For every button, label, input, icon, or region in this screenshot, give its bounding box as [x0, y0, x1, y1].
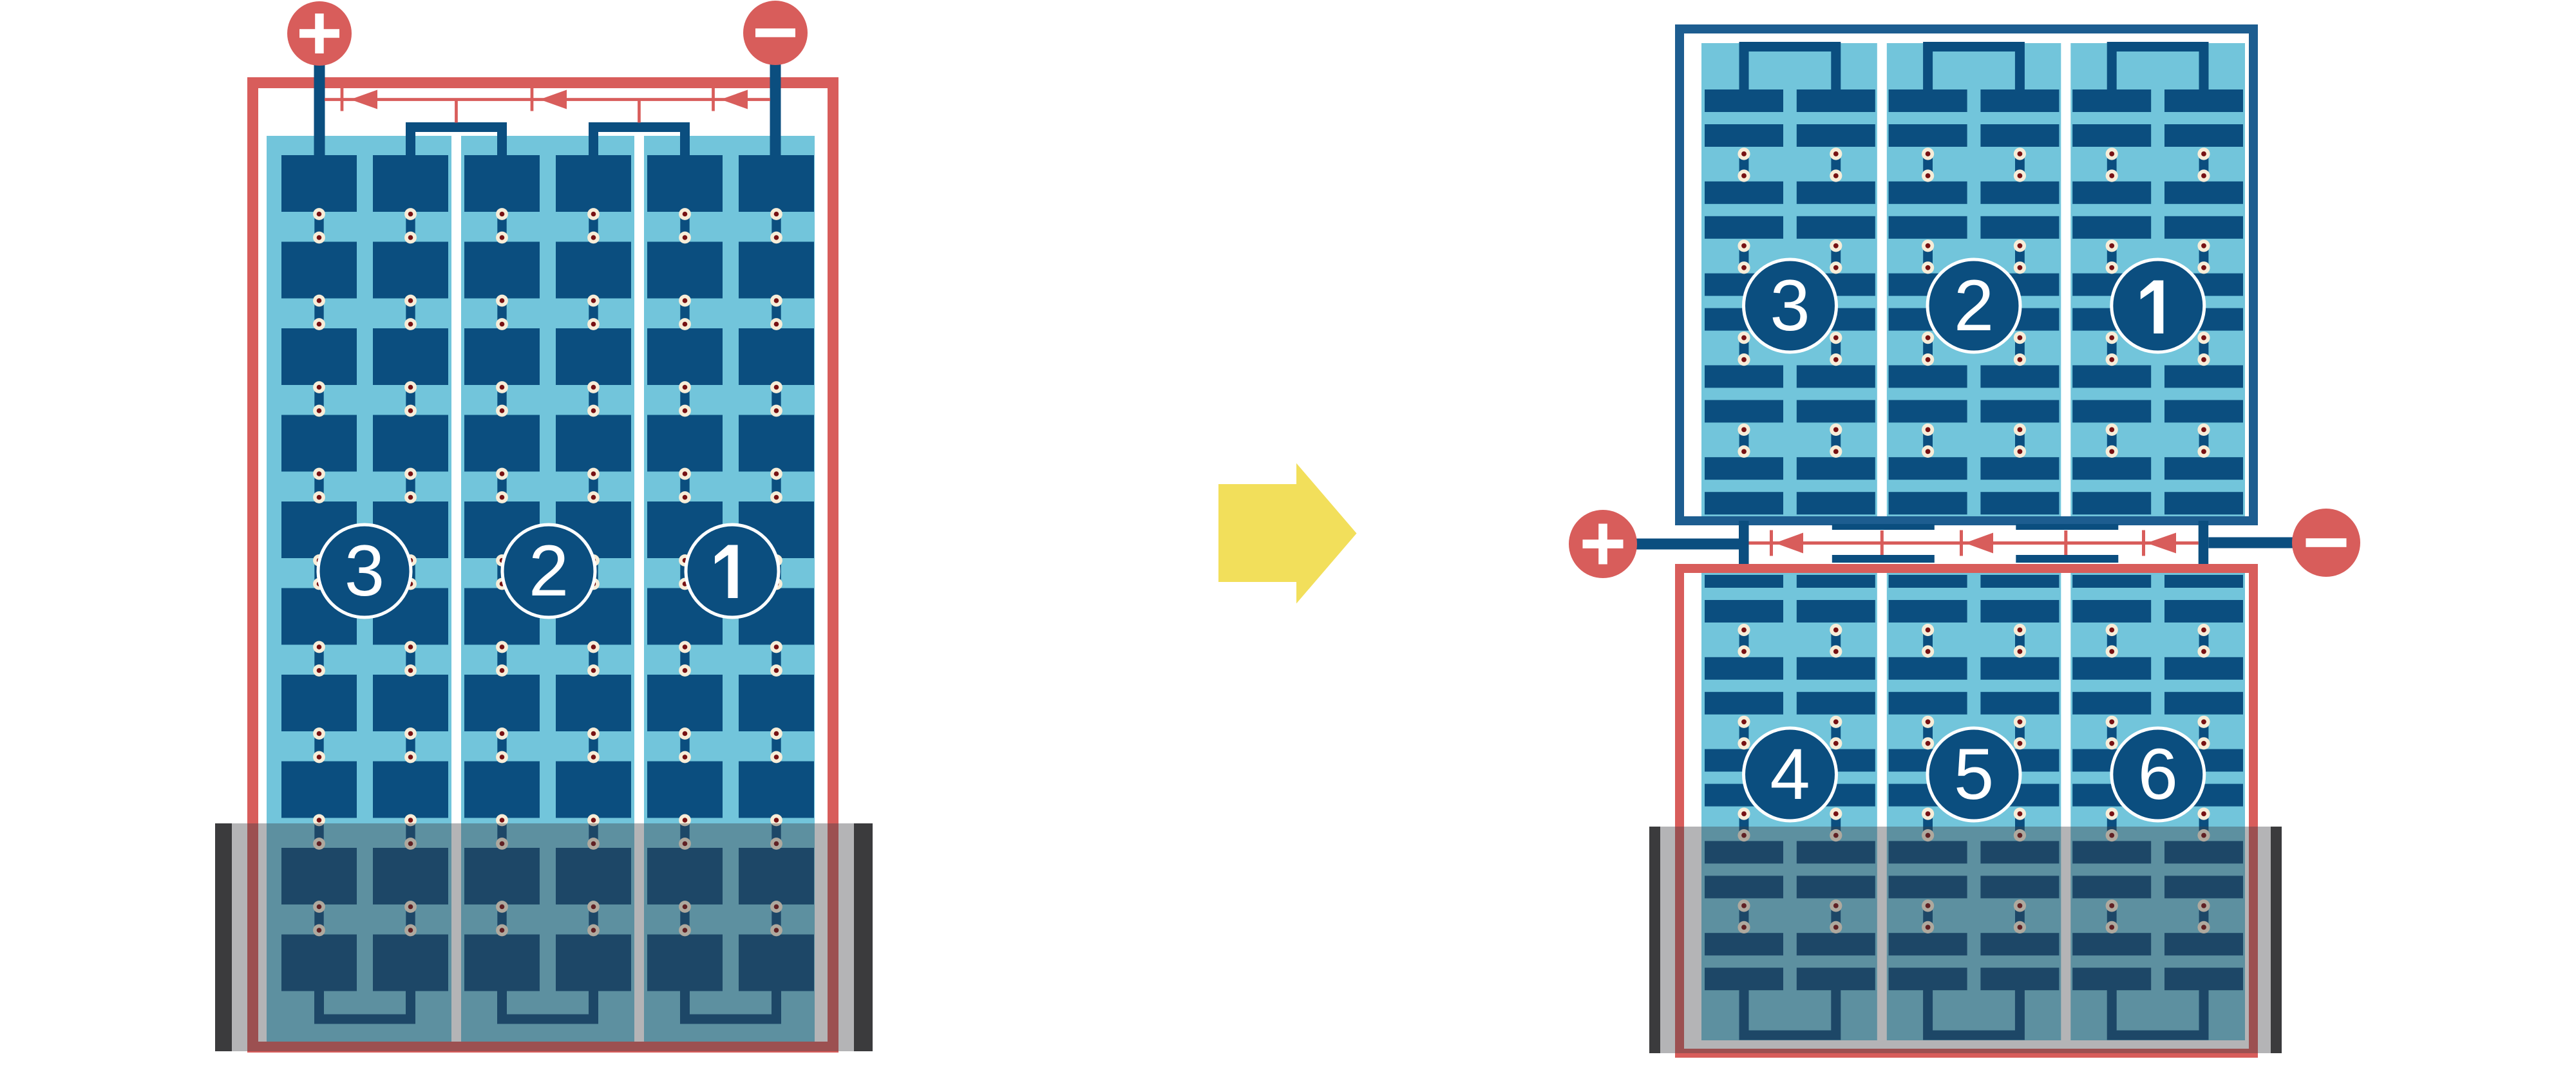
svg-text:4: 4 — [1770, 734, 1810, 814]
svg-text:5: 5 — [1954, 734, 1994, 814]
svg-text:2: 2 — [529, 530, 569, 611]
svg-text:3: 3 — [345, 530, 384, 611]
svg-text:2: 2 — [1954, 265, 1994, 346]
svg-text:6: 6 — [2138, 734, 2178, 814]
svg-text:3: 3 — [1770, 265, 1810, 346]
